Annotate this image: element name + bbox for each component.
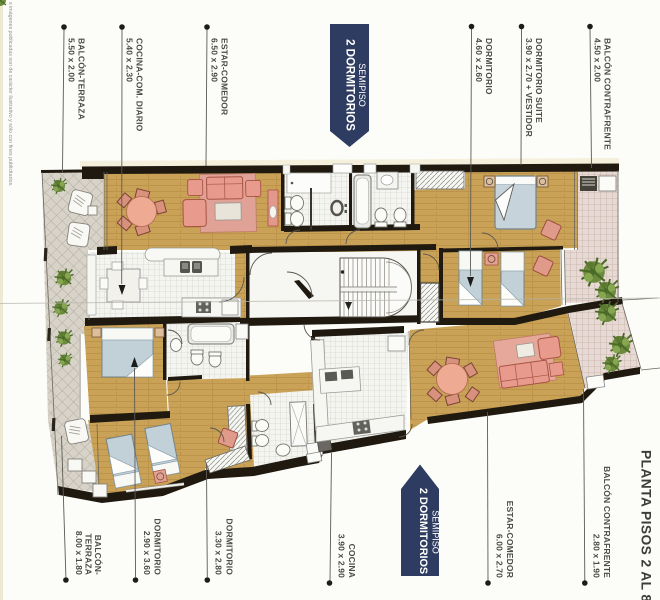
svg-text:BALCÓN CONTRAFRENTE: BALCÓN CONTRAFRENTE (602, 466, 613, 578)
svg-text:2.90 x 3.60: 2.90 x 3.60 (142, 531, 152, 575)
svg-text:COCINA-COM. DIARIO: COCINA-COM. DIARIO (135, 38, 145, 132)
svg-text:s imágenes publicadas son de c: s imágenes publicadas son de carácter il… (7, 2, 13, 187)
svg-text:4.50 x 2.00: 4.50 x 2.00 (593, 38, 603, 82)
svg-text:DORMITORIO SUITE: DORMITORIO SUITE (534, 38, 544, 123)
svg-text:DORMITORIO: DORMITORIO (153, 518, 163, 575)
svg-text:3.90 x 2.90: 3.90 x 2.90 (337, 534, 347, 578)
svg-text:5.40 x 2.30: 5.40 x 2.30 (125, 38, 135, 82)
svg-text:5.50 x 2.00: 5.50 x 2.00 (67, 38, 77, 82)
svg-text:DORMITORIO: DORMITORIO (225, 518, 235, 575)
svg-text:4.60 x 2.60: 4.60 x 2.60 (474, 38, 484, 82)
svg-text:ESTAR-COMEDOR: ESTAR-COMEDOR (505, 501, 515, 578)
svg-text:BALCÓN-TERRAZA: BALCÓN-TERRAZA (77, 38, 88, 120)
svg-text:3.30 x 2.80: 3.30 x 2.80 (214, 531, 224, 575)
svg-text:ESTAR-COMEDOR: ESTAR-COMEDOR (220, 38, 230, 115)
svg-text:BALCÓN-: BALCÓN- (93, 535, 104, 575)
svg-text:SEMIPISO: SEMIPISO (357, 63, 367, 107)
svg-text:2.80 x 1.90: 2.80 x 1.90 (592, 534, 602, 578)
svg-text:6.00 x 2.70: 6.00 x 2.70 (495, 534, 505, 578)
svg-text:3.90 x 2.70 + VESTIDOR: 3.90 x 2.70 + VESTIDOR (524, 38, 534, 137)
svg-text:COCINA: COCINA (347, 544, 357, 578)
svg-text:DORMITORIO: DORMITORIO (484, 38, 494, 95)
svg-text:8.00 x 1.80: 8.00 x 1.80 (74, 531, 84, 575)
svg-text:SEMIPISO: SEMIPISO (431, 510, 441, 554)
svg-text:2 DORMITORIOS: 2 DORMITORIOS (344, 39, 356, 131)
svg-text:6.50 x 2.90: 6.50 x 2.90 (210, 38, 220, 82)
svg-text:BALCÓN CONTRAFRENTE: BALCÓN CONTRAFRENTE (603, 38, 614, 150)
svg-text:TERRAZA: TERRAZA (84, 533, 94, 575)
svg-text:PLANTA PISOS 2 AL 8: PLANTA PISOS 2 AL 8 (639, 450, 654, 600)
svg-text:2 DORMITORIOS: 2 DORMITORIOS (417, 488, 429, 574)
